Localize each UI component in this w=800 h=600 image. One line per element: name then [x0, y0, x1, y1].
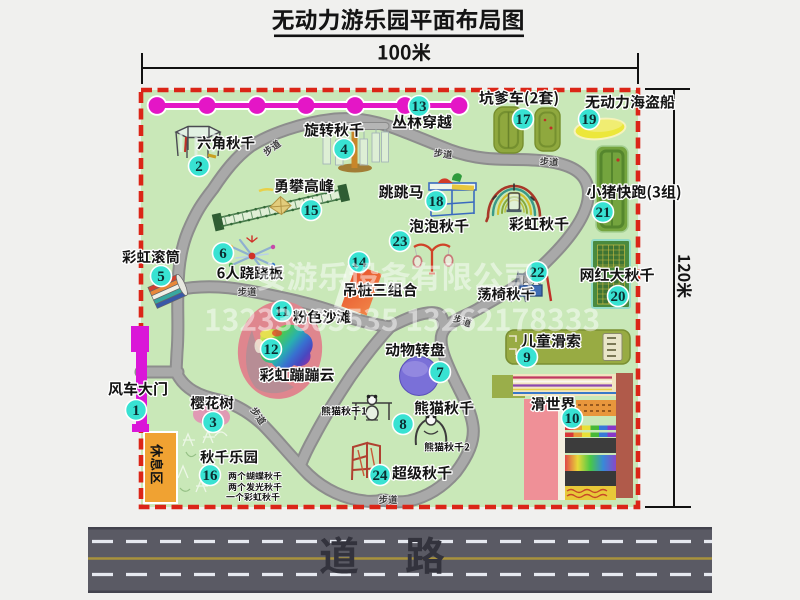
svg-text:12: 12 [264, 342, 279, 358]
svg-text:22: 22 [530, 265, 545, 281]
svg-text:17: 17 [516, 112, 532, 128]
svg-text:13: 13 [412, 99, 427, 115]
svg-text:18: 18 [429, 194, 444, 210]
svg-text:8: 8 [399, 417, 407, 433]
svg-text:15: 15 [304, 203, 319, 219]
svg-text:6: 6 [219, 246, 227, 262]
svg-text:23: 23 [393, 234, 408, 250]
svg-text:10: 10 [565, 411, 580, 427]
svg-text:19: 19 [582, 112, 597, 128]
svg-text:9: 9 [523, 350, 531, 366]
svg-text:21: 21 [596, 205, 611, 221]
svg-text:20: 20 [611, 289, 626, 305]
svg-text:5: 5 [157, 269, 165, 285]
svg-text:1: 1 [132, 403, 140, 419]
svg-text:7: 7 [436, 365, 444, 381]
svg-text:2: 2 [195, 159, 203, 175]
svg-text:16: 16 [203, 468, 219, 484]
svg-text:3: 3 [209, 415, 217, 431]
svg-text:4: 4 [340, 142, 348, 158]
svg-text:24: 24 [373, 468, 389, 484]
